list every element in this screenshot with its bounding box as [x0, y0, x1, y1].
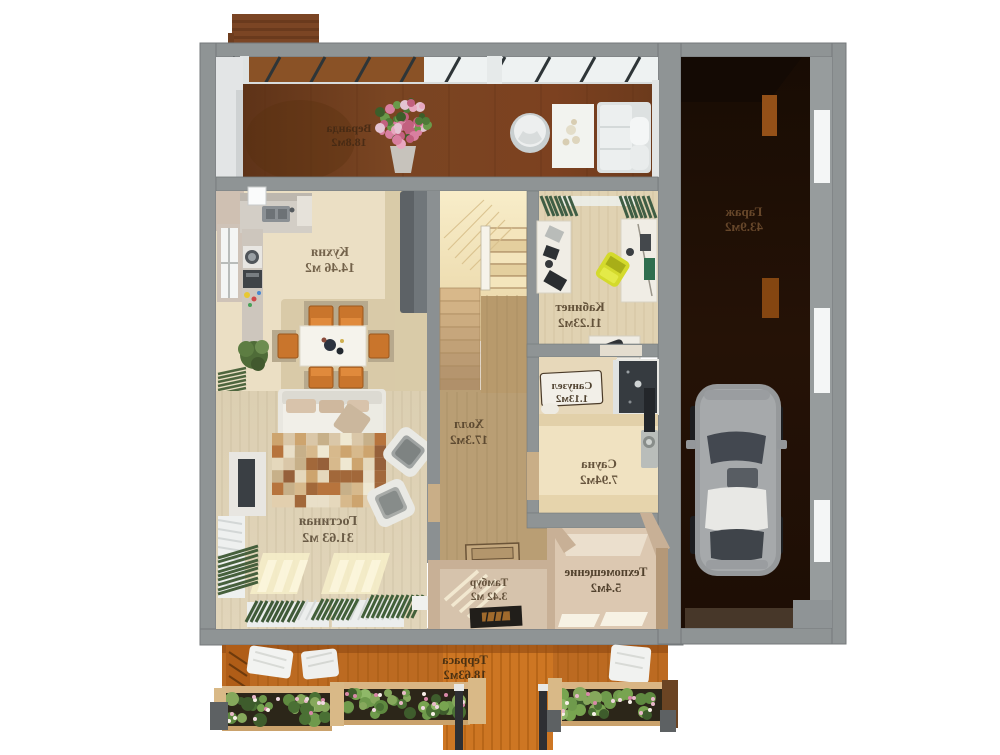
svg-text:Техпомещение: Техпомещение — [564, 565, 647, 579]
svg-text:1.13м2: 1.13м2 — [555, 393, 588, 405]
svg-text:31.63 м2: 31.63 м2 — [302, 531, 354, 546]
svg-text:Сауна: Сауна — [581, 456, 617, 471]
svg-text:14.46 м2: 14.46 м2 — [305, 260, 355, 275]
svg-text:Кухня: Кухня — [311, 244, 349, 259]
svg-text:Кабинет: Кабинет — [555, 299, 605, 314]
svg-text:Гостиная: Гостиная — [298, 514, 357, 529]
svg-text:43.9м2: 43.9м2 — [725, 219, 763, 234]
svg-text:Санузел: Санузел — [552, 380, 593, 392]
svg-text:Терраса: Терраса — [441, 653, 487, 667]
svg-text:3.42 м2: 3.42 м2 — [470, 591, 507, 603]
svg-text:7.94м2: 7.94м2 — [580, 472, 618, 487]
svg-text:11.23м2: 11.23м2 — [558, 315, 602, 330]
svg-text:5.4м2: 5.4м2 — [591, 581, 621, 595]
svg-text:Холл: Холл — [454, 416, 484, 431]
svg-text:Тамбур: Тамбур — [470, 577, 508, 589]
svg-text:Гараж: Гараж — [725, 204, 762, 219]
svg-text:17.3м2: 17.3м2 — [450, 432, 488, 447]
svg-text:Веранда: Веранда — [327, 121, 372, 135]
svg-text:18.8м2: 18.8м2 — [331, 135, 366, 149]
